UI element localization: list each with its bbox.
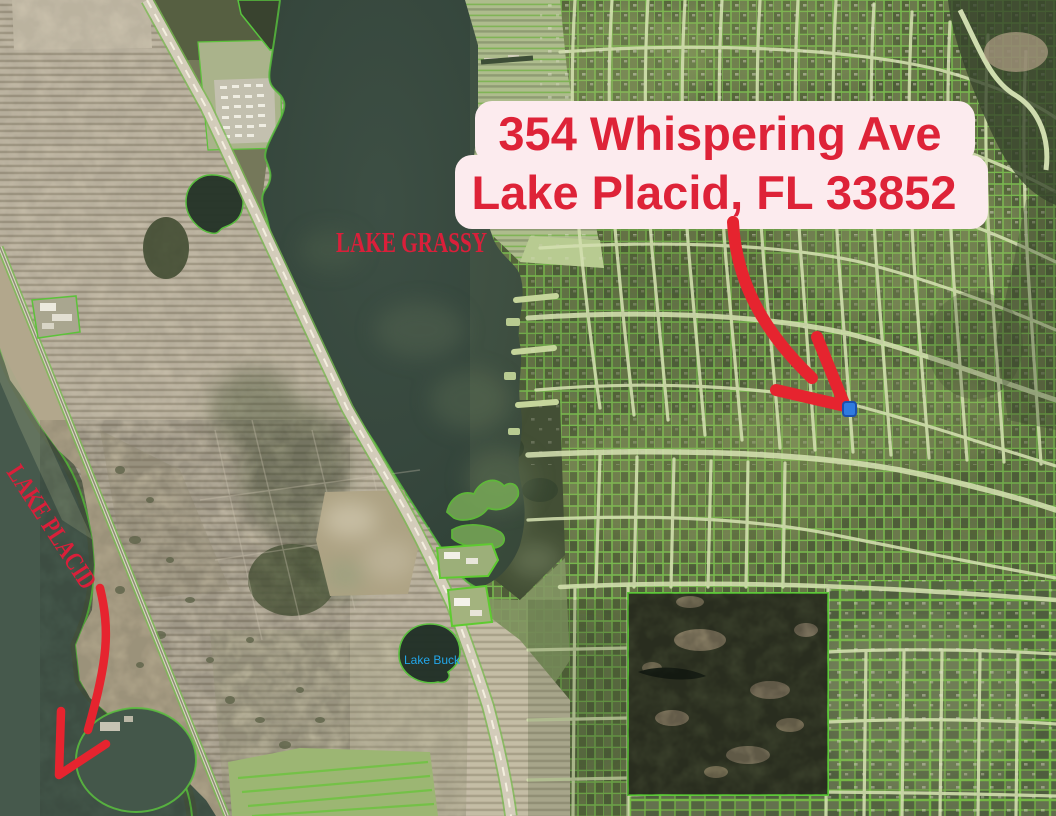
svg-text:LAKE GRASSY: LAKE GRASSY: [336, 228, 487, 259]
svg-text:354 Whispering Ave: 354 Whispering Ave: [498, 107, 941, 160]
svg-text:Lake Buck: Lake Buck: [404, 653, 461, 667]
svg-text:Lake Placid, FL 33852: Lake Placid, FL 33852: [471, 166, 956, 219]
